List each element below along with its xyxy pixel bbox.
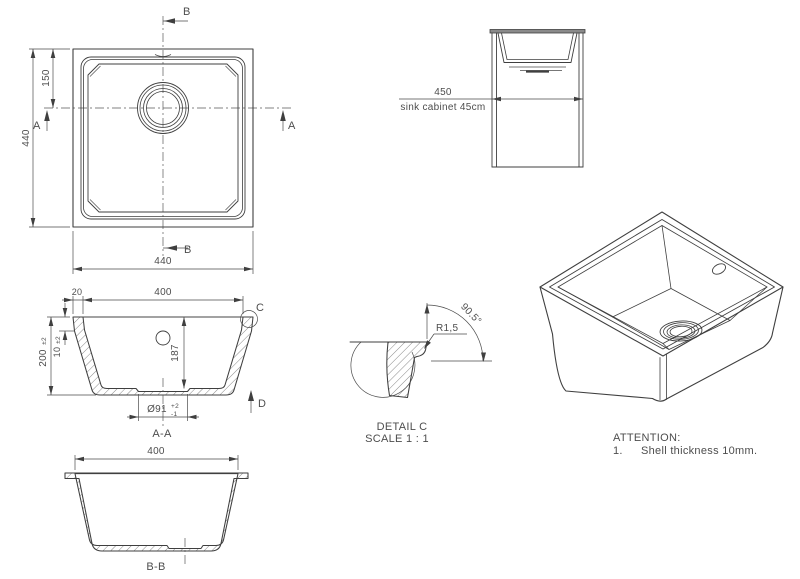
countertop: [490, 30, 585, 34]
attention-note: ATTENTION: 1. Shell thickness 10mm.: [613, 432, 757, 457]
dim-tolerance: ±2: [41, 337, 48, 345]
body-outline: [540, 287, 783, 401]
bowl-interior: [558, 226, 767, 350]
dim-text: 450: [434, 87, 452, 98]
plan-view: B B A A 440 150: [21, 6, 296, 274]
section-marker-b-bottom: B: [163, 244, 192, 256]
section-marker-a-left: A: [33, 110, 50, 132]
rim-inner: [550, 220, 775, 350]
section-label: B: [183, 6, 191, 18]
overflow-hole-section: [156, 331, 170, 345]
direction-marker-d: D: [248, 390, 266, 413]
dim-text: 187: [170, 344, 181, 362]
section-marker-b-top: B: [163, 6, 191, 24]
drawing-canvas: B B A A 440 150: [0, 0, 800, 579]
rim-corner-section: [387, 342, 427, 398]
section-label: A: [288, 120, 296, 132]
isometric-view: [540, 212, 783, 401]
dim-drain-offset: 150: [41, 49, 55, 108]
dim-text: 400: [154, 287, 172, 298]
detail-c-view: R1,5 90.5° DETAIL C SCALE 1 : 1: [350, 301, 492, 445]
direction-label: D: [258, 398, 266, 410]
section-bb-view: 400 B-B: [65, 446, 248, 573]
dim-text: 150: [41, 69, 52, 87]
dim-text: 440: [21, 129, 32, 147]
detail-title: DETAIL C: [377, 421, 428, 433]
dim-inner-width: 400: [75, 446, 238, 470]
dim-tolerance-minus: -1: [171, 411, 177, 418]
rim-outer: [540, 212, 783, 356]
bowl-top-edge: [558, 226, 767, 344]
section-marker-a-right: A: [280, 110, 296, 132]
radius-text: R1,5: [436, 323, 458, 334]
view-title: A-A: [152, 428, 172, 440]
dim-text: Ø91: [147, 404, 167, 415]
cabinet-label: sink cabinet 45cm: [400, 102, 485, 113]
sink-bowl-front: [498, 33, 577, 72]
detail-label: C: [256, 302, 264, 314]
dim-tolerance: ±2: [55, 336, 62, 344]
section-aa-view: 20 400 200 ±2 10 ±2 187: [38, 287, 266, 440]
overflow-hole-isometric: [711, 262, 728, 277]
section-label: B: [184, 244, 192, 256]
sink-wall-section: [65, 473, 248, 551]
detail-scale: SCALE 1 : 1: [365, 433, 429, 445]
dim-text: 200: [38, 349, 49, 367]
dim-text: 20: [72, 287, 83, 297]
dim-inner-depth: 187: [170, 317, 186, 389]
section-label: A: [33, 120, 41, 132]
dim-text: 440: [154, 256, 172, 267]
view-title: B-B: [146, 561, 165, 573]
note-text: Shell thickness 10mm.: [641, 445, 757, 457]
cabinet-view: 450 sink cabinet 45cm: [399, 30, 585, 168]
note-heading: ATTENTION:: [613, 432, 681, 444]
dim-text: 10: [52, 347, 62, 358]
angle-text: 90.5°: [458, 301, 483, 327]
front-corner-edges: [660, 354, 667, 400]
dim-rim-height: 10 ±2: [52, 303, 75, 357]
technical-drawing-page: B B A A 440 150: [0, 0, 800, 579]
dim-cabinet-width: 450 sink cabinet 45cm: [399, 87, 583, 113]
note-number: 1.: [613, 445, 623, 457]
radius-callout: R1,5: [424, 323, 467, 349]
dim-tolerance-plus: +2: [171, 403, 179, 410]
dim-text: 400: [147, 446, 165, 457]
dim-flange: 20 400: [62, 287, 243, 314]
